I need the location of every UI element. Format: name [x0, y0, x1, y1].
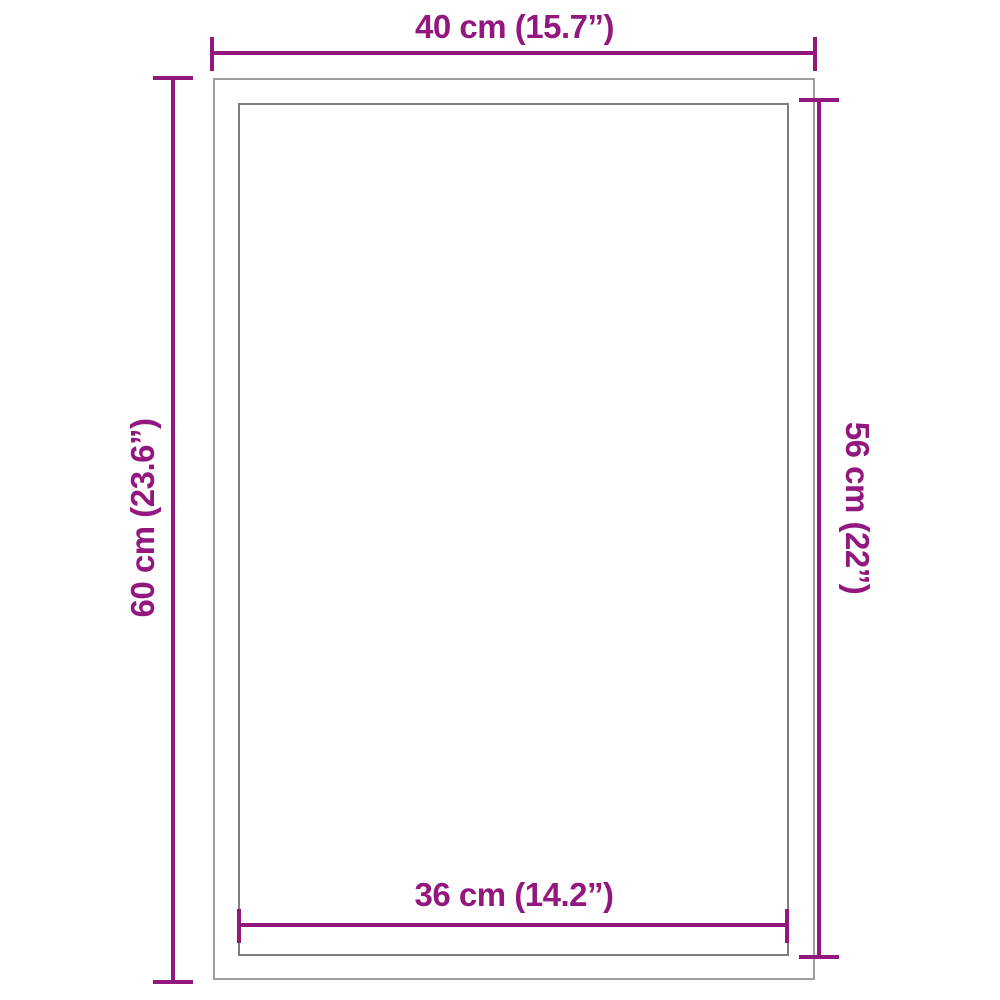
bottom-dimension-right-tick: [785, 909, 789, 943]
right-dimension-bottom-tick: [799, 955, 839, 959]
left-dimension-label: 60 cm (23.6”): [124, 419, 162, 618]
left-dimension-bottom-tick: [153, 980, 193, 984]
bottom-dimension-line: [239, 923, 789, 927]
left-dimension-top-tick: [153, 76, 193, 80]
inner-rectangle: [238, 103, 789, 956]
left-dimension-line: [171, 78, 175, 982]
right-dimension-top-tick: [799, 98, 839, 102]
top-dimension-left-tick: [210, 37, 214, 71]
top-dimension-label: 40 cm (15.7”): [212, 8, 817, 46]
right-dimension-line: [817, 100, 821, 957]
product-dimension-diagram: 40 cm (15.7”) 60 cm (23.6”) 56 cm (22”) …: [0, 0, 1000, 1000]
bottom-dimension-left-tick: [237, 909, 241, 943]
bottom-dimension-label: 36 cm (14.2”): [239, 876, 789, 914]
top-dimension-line: [212, 51, 817, 55]
top-dimension-right-tick: [813, 37, 817, 71]
right-dimension-label: 56 cm (22”): [838, 422, 876, 594]
